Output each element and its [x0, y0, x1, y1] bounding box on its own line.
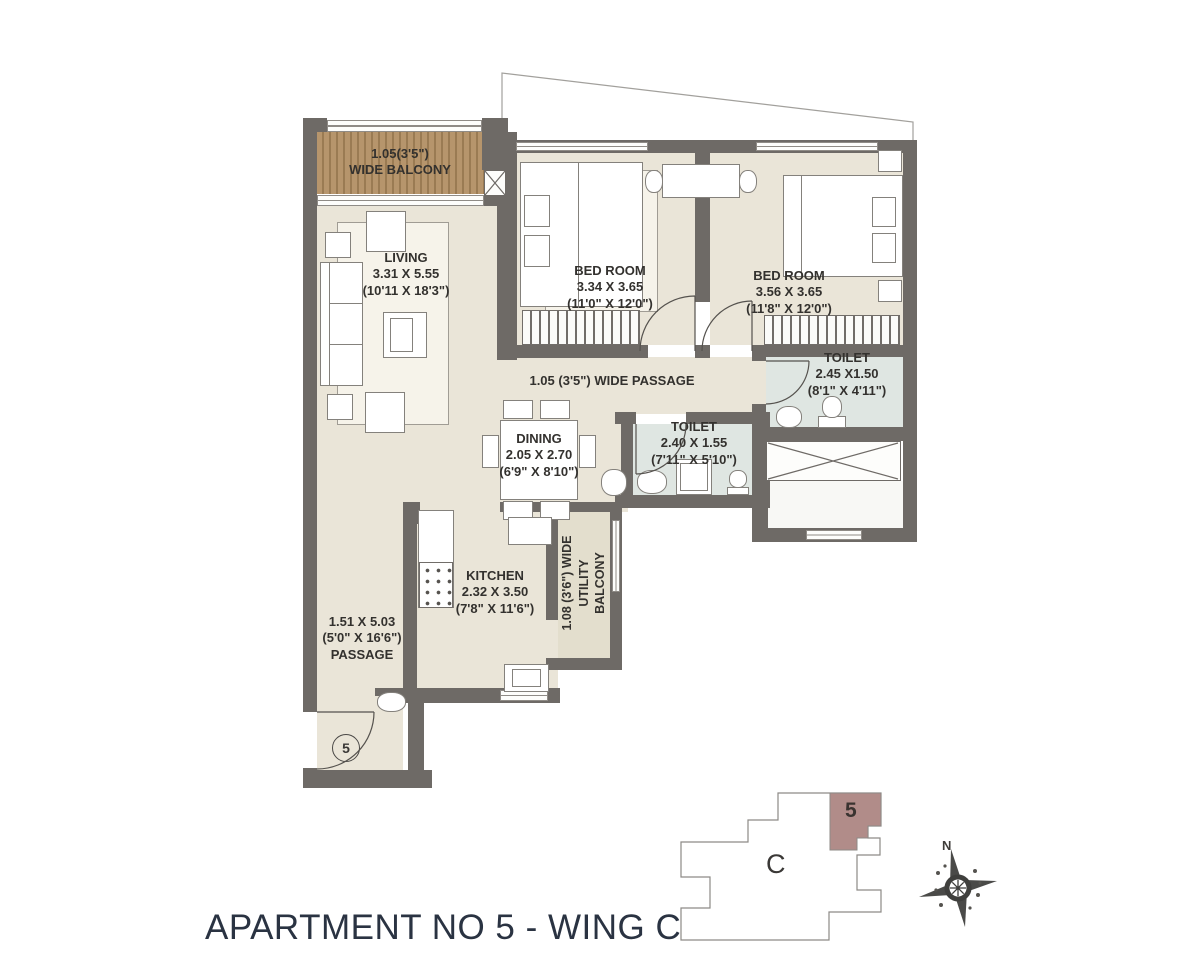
compass-dot — [934, 888, 937, 891]
wardrobe — [522, 310, 640, 345]
room-dim-m: 2.40 X 1.55 — [651, 435, 737, 451]
compass-dot — [936, 871, 940, 875]
compass-north-label: N — [942, 838, 951, 853]
wall-left-upper — [303, 118, 317, 712]
room-dim-ft: (11'0" X 12'0") — [567, 296, 653, 312]
room-name: DINING — [499, 431, 578, 447]
wall-toilet2-bottom — [615, 495, 770, 508]
pillow — [872, 233, 896, 263]
compass-dot — [939, 903, 943, 907]
bedroom2-label: BED ROOM 3.56 X 3.65 (11'8" X 12'0") — [746, 268, 832, 317]
wardrobe — [764, 315, 900, 345]
balcony-duct-box — [484, 170, 506, 196]
utility-name2: BALCONY — [592, 513, 609, 653]
toilet1-label: TOILET 2.45 X1.50 (8'1" X 4'11") — [808, 350, 887, 399]
side-table — [325, 232, 351, 258]
bed-fold-line — [801, 176, 802, 276]
keyplan-wing-label: C — [766, 849, 786, 880]
wide-passage-label: 1.05 (3'5") WIDE PASSAGE — [529, 373, 694, 389]
room-dim-m: 2.05 X 2.70 — [499, 447, 578, 463]
room-dim-ft: (6'9" X 8'10") — [499, 464, 578, 480]
wc-bowl — [822, 396, 842, 418]
coffee-table-inner — [390, 318, 413, 352]
room-dim-ft: (7'11" X 5'10") — [651, 452, 737, 468]
pillow — [524, 235, 550, 267]
compass-center-dot — [956, 886, 960, 890]
compass-dot — [968, 906, 971, 909]
bedroom2-window — [756, 142, 878, 151]
balcony-name: WIDE BALCONY — [349, 162, 451, 178]
bedroom1-label: BED ROOM 3.34 X 3.65 (11'0" X 12'0") — [567, 263, 653, 312]
room-name: LIVING — [363, 250, 450, 266]
wc-tank — [727, 487, 749, 495]
room-dim-ft: (8'1" X 4'11") — [808, 383, 887, 399]
deck-window — [806, 530, 862, 540]
room-dim-ft: (5'0" X 16'6") — [322, 630, 401, 646]
wall-entry-right — [408, 700, 424, 788]
washbasin — [601, 469, 627, 496]
side-table — [327, 394, 353, 420]
compass-east-ray — [965, 880, 997, 892]
room-dim-ft: (11'8" X 12'0") — [746, 301, 832, 317]
balcony-dim: 1.05(3'5") — [349, 146, 451, 162]
room-name: TOILET — [651, 419, 737, 435]
toilet2-label: TOILET 2.40 X 1.55 (7'11" X 5'10") — [651, 419, 737, 468]
compass-ring — [947, 877, 969, 899]
washbasin — [377, 692, 406, 712]
wc-bowl — [729, 470, 747, 488]
wall-door-pier — [695, 345, 710, 358]
nightstand — [878, 150, 902, 172]
compass-dot — [976, 893, 980, 897]
desk-chair — [645, 170, 663, 193]
below-shaft-floor — [768, 481, 903, 528]
page-title: APARTMENT NO 5 - WING C — [205, 908, 681, 948]
armchair — [366, 211, 406, 252]
left-passage-label: 1.51 X 5.03 (5'0" X 16'6") PASSAGE — [322, 614, 401, 663]
compass-dot — [943, 864, 946, 867]
room-name: PASSAGE — [322, 647, 401, 663]
balcony-label: 1.05(3'5") WIDE BALCONY — [349, 146, 451, 179]
room-dim-m: 1.51 X 5.03 — [322, 614, 401, 630]
compass-dot — [973, 869, 977, 873]
passage-text: 1.05 (3'5") WIDE PASSAGE — [529, 373, 694, 389]
study-desk — [662, 164, 740, 198]
wall-balcony-cap-left — [303, 118, 327, 132]
utility-balcony-label: 1.08 (3'6") WIDE UTILITY BALCONY — [514, 513, 654, 653]
terrace-boundary-line — [502, 73, 913, 140]
washbasin — [776, 406, 802, 428]
balcony-living-window — [317, 195, 484, 206]
compass-dot — [978, 881, 981, 884]
wall-bedroom1-bottom — [497, 345, 648, 358]
wall-right — [903, 140, 917, 542]
wall-toilet1-bottom — [752, 427, 917, 441]
wall-kitchen-left — [403, 502, 417, 703]
entrance-number-badge: 5 — [332, 734, 360, 762]
compass-south-ray — [954, 891, 967, 927]
pillow — [524, 195, 550, 227]
compass-west-ray — [919, 884, 951, 897]
dining-label: DINING 2.05 X 2.70 (6'9" X 8'10") — [499, 431, 578, 480]
utility-dim: 1.08 (3'6") WIDE — [559, 513, 576, 653]
armchair — [365, 392, 405, 433]
dining-chair — [482, 435, 499, 468]
gas-hob — [419, 562, 453, 608]
wall-toilet2-left — [621, 412, 633, 508]
wall-utility-bottom — [546, 658, 622, 670]
bedroom1-window — [516, 142, 648, 151]
dining-chair — [503, 400, 533, 419]
utility-name1: UTILITY — [576, 513, 593, 653]
room-dim-m: 3.56 X 3.65 — [746, 284, 832, 300]
sofa — [320, 262, 363, 386]
service-shaft — [766, 441, 901, 481]
room-name: BED ROOM — [746, 268, 832, 284]
room-dim-m: 3.31 X 5.55 — [363, 266, 450, 282]
compass-north-ray — [950, 849, 963, 886]
room-dim-ft: (10'11 X 18'3") — [363, 283, 450, 299]
entrance-number: 5 — [342, 740, 350, 756]
compass-rose — [919, 849, 997, 927]
living-label: LIVING 3.31 X 5.55 (10'11 X 18'3") — [363, 250, 450, 299]
floor-plan-canvas: 1.05(3'5") WIDE BALCONY LIVING 3.31 X 5.… — [0, 0, 1181, 970]
room-name: TOILET — [808, 350, 887, 366]
wall-living-bedroom1 — [497, 132, 517, 360]
desk-chair — [739, 170, 757, 193]
dining-chair — [540, 400, 570, 419]
room-dim-m: 3.34 X 3.65 — [567, 279, 653, 295]
dining-chair — [579, 435, 596, 468]
compass-spokes — [950, 880, 966, 896]
nightstand — [878, 280, 902, 302]
balcony-top-window — [327, 120, 482, 132]
sofa-cushion-line — [329, 263, 330, 385]
room-dim-m: 2.45 X1.50 — [808, 366, 887, 382]
keyplan-unit-label: 5 — [845, 799, 857, 823]
sofa-cushion-line — [329, 303, 362, 304]
wall-toilet1-left-a — [752, 345, 766, 361]
room-name: BED ROOM — [567, 263, 653, 279]
kitchen-sink — [512, 669, 541, 687]
washbasin — [637, 470, 667, 494]
pillow — [872, 197, 896, 227]
sofa-cushion-line — [329, 344, 362, 345]
